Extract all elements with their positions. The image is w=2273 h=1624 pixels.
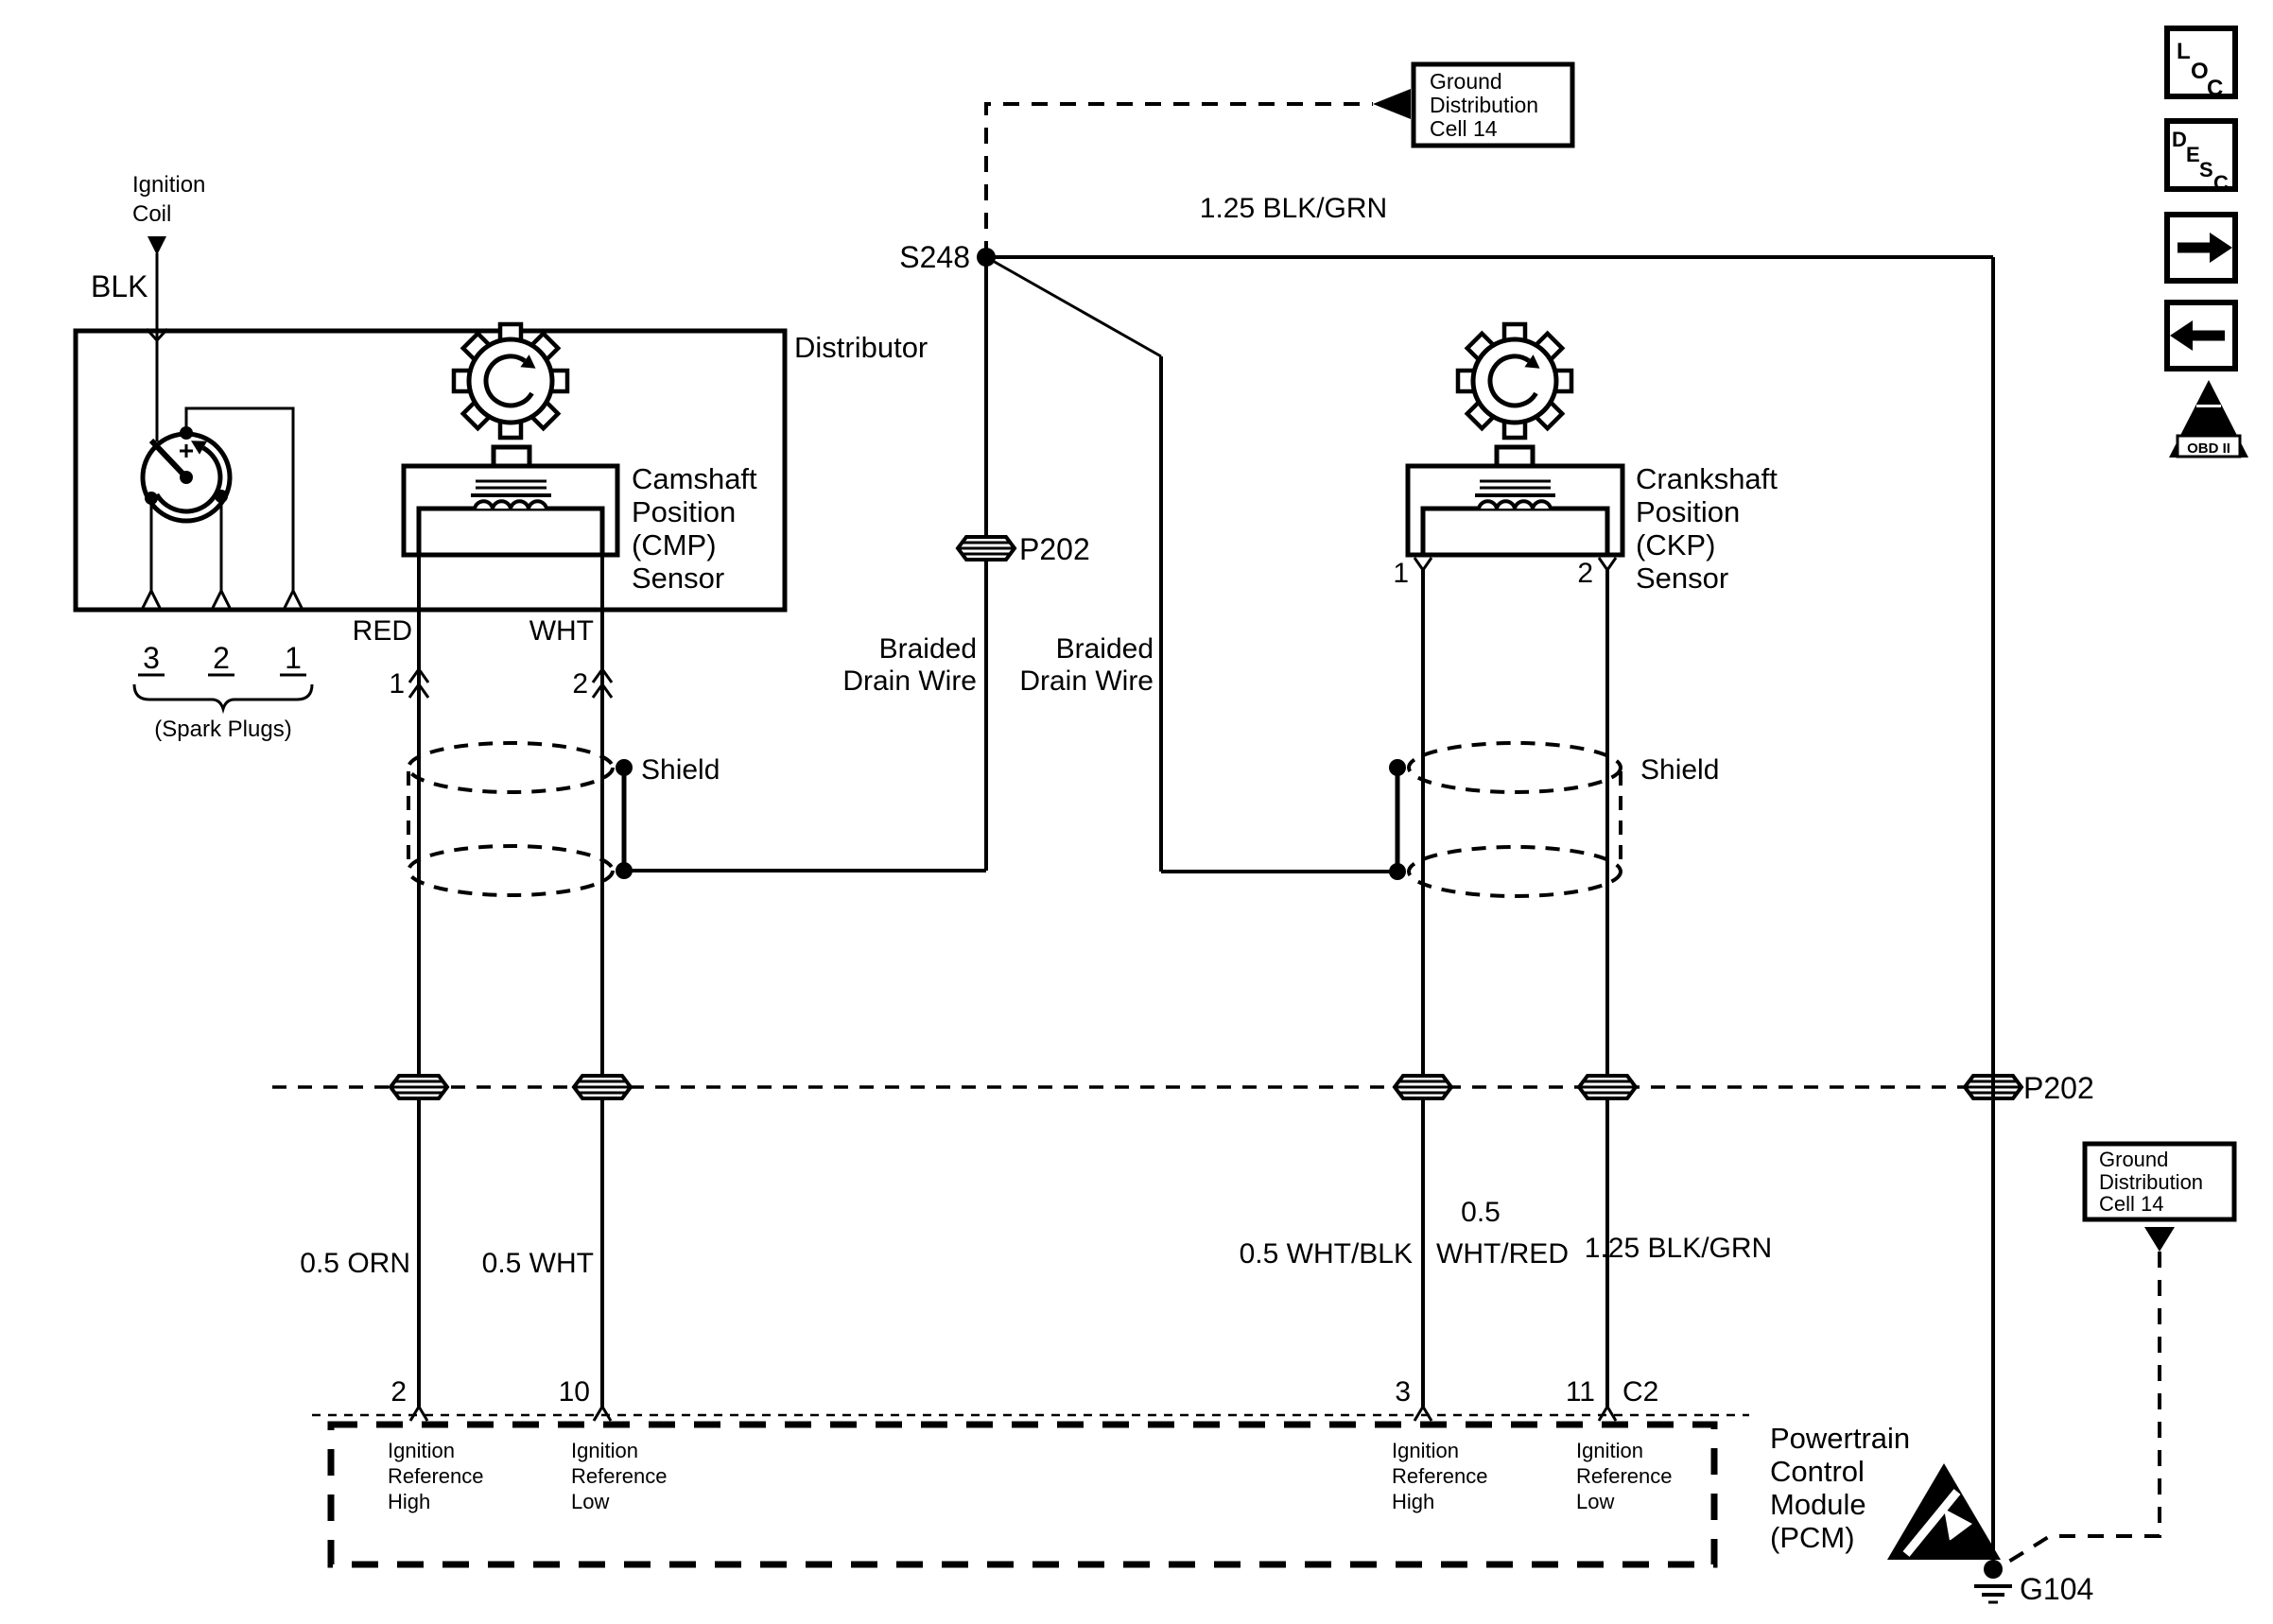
spark-pin-1: 1 [285,641,302,675]
svg-text:Low: Low [571,1490,609,1513]
ckp-shield: Shield [1161,743,1719,896]
braided-drain-left-2: Drain Wire [842,665,977,697]
p202-terminal-icon [1395,1076,1451,1098]
svg-text:Reference: Reference [571,1464,668,1488]
spark-plugs-note: (Spark Plugs) [154,717,291,742]
p202-inline-label: P202 [1019,532,1090,566]
cmp-shield-label: Shield [641,754,720,786]
svg-text:Ignition: Ignition [1392,1439,1459,1462]
ground-cell-bottom-3: Cell 14 [2099,1192,2163,1216]
cmp-wire2-color: WHT [529,615,594,647]
svg-text:Low: Low [1576,1490,1614,1513]
loc-letter-o: O [2191,59,2209,84]
cmp-label-2: Position [632,495,736,528]
ground-cell-top-1: Ground [1430,69,1502,94]
ckp-label-1: Crankshaft [1636,462,1778,495]
svg-text:High: High [388,1490,430,1513]
offpage-arrow-down-icon [2144,1227,2175,1252]
cmp-label-4: Sensor [632,561,724,595]
svg-text:High: High [1392,1490,1434,1513]
pcm-label-3: Module [1770,1488,1866,1521]
ground-cell-bottom-1: Ground [2099,1148,2168,1171]
g104-ground: G104 [1974,1560,2093,1606]
desc-letter-d: D [2172,128,2187,151]
ckp-pin-2: 2 [1577,558,1593,589]
ckp-label-3: (CKP) [1636,528,1715,561]
ground-cell-bottom-2: Distribution [2099,1170,2203,1194]
ckp-reluctor-gear-icon [1458,324,1571,438]
spark-terminal-fork-icon [213,591,230,608]
loc-button[interactable]: L O C [2167,28,2235,101]
p202-passthrough: P202 [272,1071,2094,1105]
wire-wht-label: 0.5 WHT [482,1248,594,1279]
pcm-function-ref-low-left: Ignition Reference Low [571,1439,668,1513]
pcm-label-1: Powertrain [1770,1422,1910,1455]
next-page-button[interactable] [2167,215,2235,281]
pcm-pin-11: 11 [1566,1376,1595,1408]
ignition-coil-label-2: Coil [132,201,171,227]
braided-drain-left-1: Braided [879,633,977,665]
nav-icon-group: L O C D E S C II [2167,28,2248,458]
svg-text:Reference: Reference [1392,1464,1488,1488]
svg-text:Ignition: Ignition [388,1439,455,1462]
g104-label: G104 [2020,1572,2093,1606]
ground-cell-top-2: Distribution [1430,93,1538,117]
cmp-label-1: Camshaft [632,462,757,495]
svg-text:Reference: Reference [1576,1464,1673,1488]
wire-whtred-label-1: 0.5 [1461,1197,1501,1228]
s248-junction: S248 [899,240,996,274]
ckp-label-4: Sensor [1636,561,1728,595]
prev-page-button[interactable] [2167,302,2235,369]
esd-warning-icon [1887,1463,2001,1560]
svg-text:Ignition: Ignition [1576,1439,1643,1462]
spark-pin-3: 3 [143,641,160,675]
desc-button[interactable]: D E S C [2167,121,2235,195]
wiring-diagram-canvas: L O C D E S C II [0,0,2273,1624]
cmp-shield: Shield [408,743,986,895]
spark-plug-pins: 3 2 1 (Spark Plugs) [134,641,312,742]
pcm-function-ref-high-right: Ignition Reference High [1392,1439,1488,1513]
pcm-module: 2 10 3 11 C2 Ignition Reference High Ign… [312,1376,2001,1564]
obd2-badge-icon: II OBD II [2169,380,2248,458]
distributor-label: Distributor [794,331,928,364]
loc-letter-l: L [2177,39,2191,64]
pcm-pin-10: 10 [559,1376,590,1408]
pcm-label-4: (PCM) [1770,1521,1855,1554]
loc-letter-c: C [2207,76,2223,101]
cmp-pigtail-terminals: 1 2 [389,668,612,700]
blkgrn-top-label: 1.25 BLK/GRN [1200,193,1387,224]
pcm-label-2: Control [1770,1455,1865,1488]
ckp-terminals: 1 2 [1393,558,1616,589]
ckp-shield-label: Shield [1640,754,1719,786]
s248-label: S248 [899,240,970,274]
svg-text:Ignition: Ignition [571,1439,638,1462]
desc-letter-c: C [2213,171,2229,195]
p202-inline-connector-icon [958,537,1015,560]
obd2-numeral: II [2202,412,2214,438]
wiring-diagram-page: L O C D E S C II [0,0,2273,1624]
wire-blkgrn-bottom-label: 1.25 BLK/GRN [1585,1233,1772,1264]
cmp-sensor: Camshaft Position (CMP) Sensor [404,324,757,595]
p202-terminal-icon [574,1076,631,1098]
cmp-reluctor-gear-icon [454,324,567,438]
offpage-arrow-icon [1373,89,1411,119]
right-braided-drain-diagonal [986,257,1161,356]
svg-text:Reference: Reference [388,1464,484,1488]
spark-plugs-brace [134,684,312,709]
obd2-label: OBD II [2187,441,2230,457]
coil-arrow-down-icon [147,236,166,255]
pcm-pin-3: 3 [1395,1376,1411,1408]
pcm-function-ref-high-left: Ignition Reference High [388,1439,484,1513]
p202-line-label: P202 [2023,1071,2094,1105]
ignition-coil-label-1: Ignition [132,172,205,198]
ground-ref-bottom: Ground Distribution Cell 14 [2003,1144,2234,1565]
wire-whtblk-label: 0.5 WHT/BLK [1240,1238,1413,1270]
wire-color-blk: BLK [91,269,147,303]
ckp-pin-1: 1 [1393,558,1409,589]
wire-orn-label: 0.5 ORN [300,1248,410,1279]
pcm-function-ref-low-right: Ignition Reference Low [1576,1439,1673,1513]
cmp-pin-1: 1 [389,668,405,700]
cmp-pin-2: 2 [572,668,588,700]
ckp-label-2: Position [1636,495,1740,528]
p202-terminal-icon [1579,1076,1636,1098]
spark-terminal-fork-icon [285,591,302,608]
p202-terminal-icon [390,1076,447,1098]
pcm-pin-2: 2 [390,1376,407,1408]
desc-letter-e: E [2186,143,2200,166]
ckp-sensor: Crankshaft Position (CKP) Sensor [1408,324,1778,595]
cmp-wire1-color: RED [353,615,412,647]
ground-ref-top: Ground Distribution Cell 14 [986,64,1572,257]
desc-letter-s: S [2199,158,2213,181]
ignition-coil-feed: Ignition Coil BLK [91,172,205,441]
spark-pin-2: 2 [213,641,230,675]
braided-drain-right-1: Braided [1056,633,1154,665]
braided-drain-right-2: Drain Wire [1019,665,1154,697]
wire-whtred-label-2: WHT/RED [1436,1238,1569,1270]
cmp-label-3: (CMP) [632,528,717,561]
ground-cell-top-3: Cell 14 [1430,116,1498,141]
pcm-connector-c2: C2 [1622,1376,1658,1408]
spark-terminal-fork-icon [143,591,160,608]
pcm-box [331,1425,1714,1564]
